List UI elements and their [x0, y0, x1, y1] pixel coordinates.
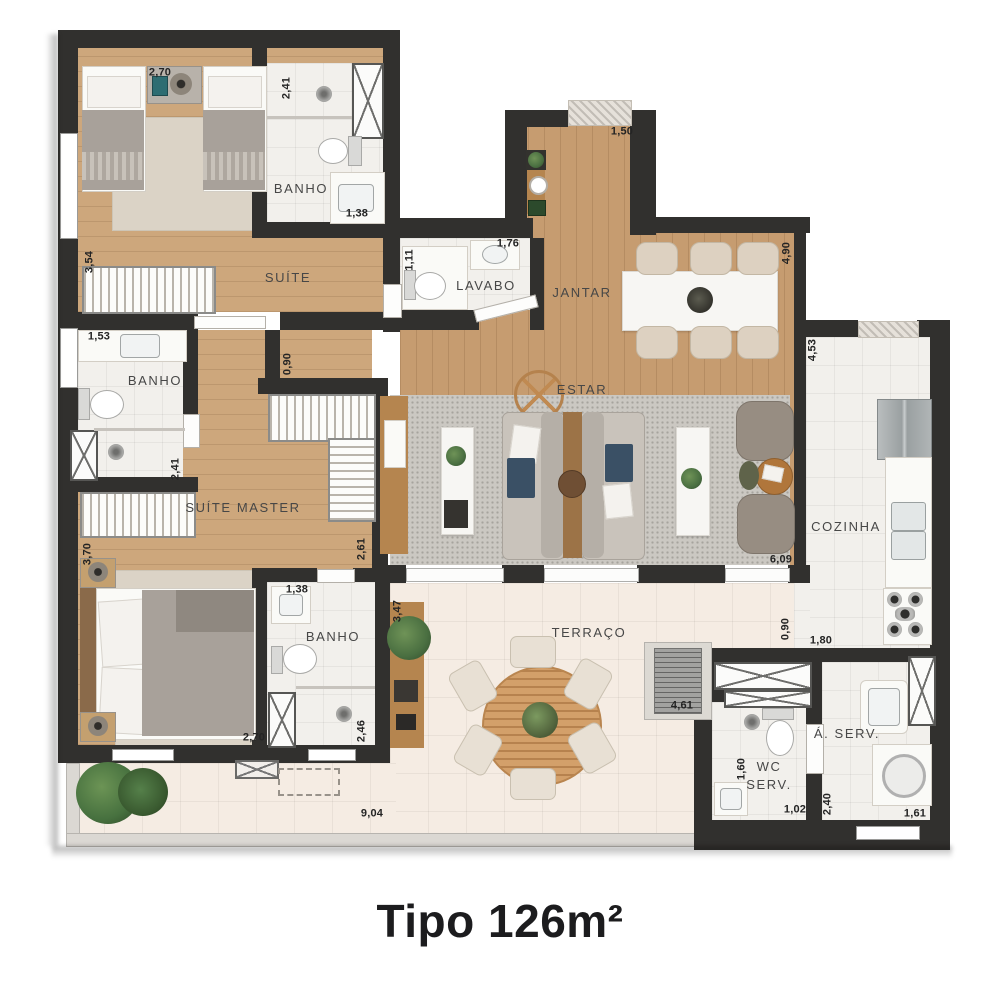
room-label-terraco: TERRAÇO [552, 625, 627, 641]
wall [378, 565, 406, 583]
burner [887, 592, 902, 607]
toilet-tank [271, 646, 283, 674]
sliding-door [406, 568, 504, 582]
kitchen-passage-floor [794, 582, 810, 648]
fridge [877, 399, 932, 460]
dim-suite-length: 3,54 [85, 251, 96, 273]
dim-a-serv-width: 1,61 [904, 809, 926, 820]
dining-chair [690, 326, 732, 359]
master-door [194, 316, 266, 329]
dim-lavabo-depth: 1,11 [405, 249, 416, 271]
wall [637, 565, 725, 583]
pillow [507, 458, 535, 498]
tv [384, 420, 406, 468]
dining-chair [636, 242, 678, 275]
shower-glass [94, 428, 185, 431]
dim-banho2-width: 1,38 [286, 585, 308, 596]
room-label-lavabo: LAVABO [456, 278, 516, 294]
entry-doormat [568, 100, 632, 126]
dim-a-serv-top: 1,80 [810, 636, 832, 647]
kitchen-sink [891, 502, 926, 531]
plan-shadow [52, 846, 952, 858]
decor-box [396, 714, 416, 730]
wall [400, 218, 533, 238]
toilet-tank [762, 708, 794, 720]
decor-box [528, 200, 546, 216]
dim-banho2-depth: 2,46 [357, 720, 368, 742]
bed-throw [82, 152, 144, 180]
bed-throw [176, 590, 254, 632]
washer-door [882, 754, 926, 798]
armchair [736, 401, 794, 461]
wall [502, 565, 544, 583]
dim-banho-master-width: 1,53 [88, 332, 110, 343]
toilet [414, 272, 446, 300]
shower-glass [296, 686, 375, 689]
terrace-chair [510, 636, 556, 668]
palm-plant [118, 768, 168, 816]
wall [530, 238, 544, 330]
sink-basin [120, 334, 160, 358]
toilet [766, 720, 794, 756]
burner [908, 622, 923, 637]
toilet [318, 138, 348, 164]
centerpiece-plant [522, 702, 558, 738]
suite-door [383, 284, 402, 318]
sink-basin [868, 688, 900, 726]
wall [258, 378, 388, 394]
pillow [602, 483, 633, 520]
toilet [90, 390, 124, 419]
pillow [208, 76, 262, 108]
dim-master-door: 0,90 [283, 353, 294, 375]
wardrobe [82, 266, 216, 314]
dim-banho-suite-width: 1,38 [346, 209, 368, 220]
shower-head [108, 444, 124, 460]
dim-master-width: 2,70 [243, 733, 265, 744]
floor-plan: BANHO SUÍTE LAVABO JANTAR ESTAR BANHO SU… [0, 0, 1000, 1000]
shaft [268, 692, 296, 748]
dining-chair [737, 242, 779, 275]
window [60, 133, 78, 239]
dim-terraco-width: 9,04 [361, 809, 383, 820]
room-label-suite-master: SUÍTE MASTER [185, 500, 300, 516]
tray [444, 500, 468, 528]
banho2-door [317, 569, 355, 583]
plan-title: Tipo 126m² [377, 894, 624, 948]
mirror [529, 176, 548, 195]
room-label-banho-master: BANHO [128, 373, 182, 389]
dim-wc-serv-depth: 1,60 [737, 758, 748, 780]
wall [806, 772, 822, 820]
dim-cozinha-length: 4,53 [808, 339, 819, 361]
shower-glass [267, 116, 352, 119]
sliding-door [544, 568, 639, 582]
exterior-notch [656, 110, 794, 217]
dim-master-length: 3,70 [83, 543, 94, 565]
plan-shadow [46, 34, 58, 846]
service-doormat [858, 321, 919, 338]
room-label-banho2: BANHO [306, 629, 360, 645]
wall [252, 222, 400, 238]
plant [387, 616, 431, 660]
dining-chair [737, 326, 779, 359]
kitchen-sink [891, 531, 926, 560]
sink-basin [279, 594, 303, 616]
wall [353, 568, 377, 582]
toilet [283, 644, 317, 674]
lamp [170, 73, 192, 95]
dining-chair [690, 242, 732, 275]
tray [394, 680, 418, 702]
dim-banho-master-depth: 2,41 [171, 458, 182, 480]
dim-closet-length: 2,61 [357, 538, 368, 560]
shaft [70, 430, 98, 481]
window [60, 328, 78, 388]
room-label-banho-suite: BANHO [274, 181, 328, 197]
wall [505, 110, 568, 127]
shaft [352, 63, 384, 139]
dim-terraco-right: 4,61 [671, 701, 693, 712]
dim-a-serv-depth: 2,40 [823, 793, 834, 815]
room-label-wc-serv: WC [757, 759, 782, 775]
room-label-cozinha: COZINHA [811, 519, 881, 535]
floor-plan-page: BANHO SUÍTE LAVABO JANTAR ESTAR BANHO SU… [0, 0, 1000, 1000]
closet [328, 438, 376, 522]
dim-wc-serv-width: 1,02 [784, 805, 806, 816]
burner [895, 607, 915, 621]
pillow [87, 76, 141, 108]
centerpiece [687, 287, 713, 313]
room-label-jantar: JANTAR [552, 285, 611, 301]
lamp [88, 716, 108, 736]
dim-terraco-depth: 3,47 [393, 600, 404, 622]
burner [887, 622, 902, 637]
shower-head [744, 714, 760, 730]
wall [794, 217, 806, 582]
room-label-wc-serv-2: SERV. [746, 777, 792, 793]
terrace-chair [510, 768, 556, 800]
dining-chair [636, 326, 678, 359]
exterior-notch [400, 110, 505, 218]
dim-cozinha-passage: 0,90 [781, 618, 792, 640]
shower-head [316, 86, 332, 102]
window [856, 826, 920, 840]
room-label-estar: ESTAR [557, 382, 607, 398]
armchair [737, 494, 795, 554]
wall [788, 565, 810, 583]
pillow [98, 598, 148, 667]
wall [375, 568, 390, 745]
burner [908, 592, 923, 607]
future-equipment-outline [278, 768, 340, 796]
dim-suite-width: 2,70 [149, 68, 171, 79]
closet [268, 394, 376, 442]
dim-entry-width: 1,50 [611, 127, 633, 138]
banho-master-door [183, 414, 200, 448]
service-cabinet [724, 690, 812, 708]
toilet-tank [78, 388, 90, 420]
plant [528, 152, 544, 168]
pillow [605, 444, 633, 482]
dim-lavabo-width: 1,76 [497, 239, 519, 250]
wall [265, 568, 317, 582]
terrace-doormat [235, 760, 279, 779]
service-cabinet [714, 662, 812, 690]
shaft [908, 656, 936, 726]
bed-throw [203, 152, 265, 180]
wall [638, 217, 810, 233]
sliding-door [725, 568, 790, 582]
window [308, 749, 356, 761]
room-label-a-serv: Á. SERV. [814, 726, 880, 742]
terrace-railing [66, 833, 696, 847]
wall [58, 312, 192, 330]
toilet-tank [348, 136, 362, 166]
dim-jantar-length: 4,90 [782, 242, 793, 264]
wall [930, 333, 950, 850]
wall [58, 30, 400, 48]
wall [265, 330, 280, 380]
sink-basin [720, 788, 742, 810]
room-label-suite: SUÍTE [265, 270, 311, 286]
photo-frame [152, 76, 168, 96]
dim-estar-width: 6,09 [770, 555, 792, 566]
plant [681, 468, 702, 489]
dim-banho-suite-depth: 2,41 [282, 77, 293, 99]
shower-head [336, 706, 352, 722]
wall [280, 312, 400, 330]
plant [446, 446, 466, 466]
window [112, 749, 174, 761]
side-table [558, 470, 586, 498]
pouf [739, 461, 759, 490]
wardrobe [80, 492, 196, 538]
wall [806, 320, 858, 337]
